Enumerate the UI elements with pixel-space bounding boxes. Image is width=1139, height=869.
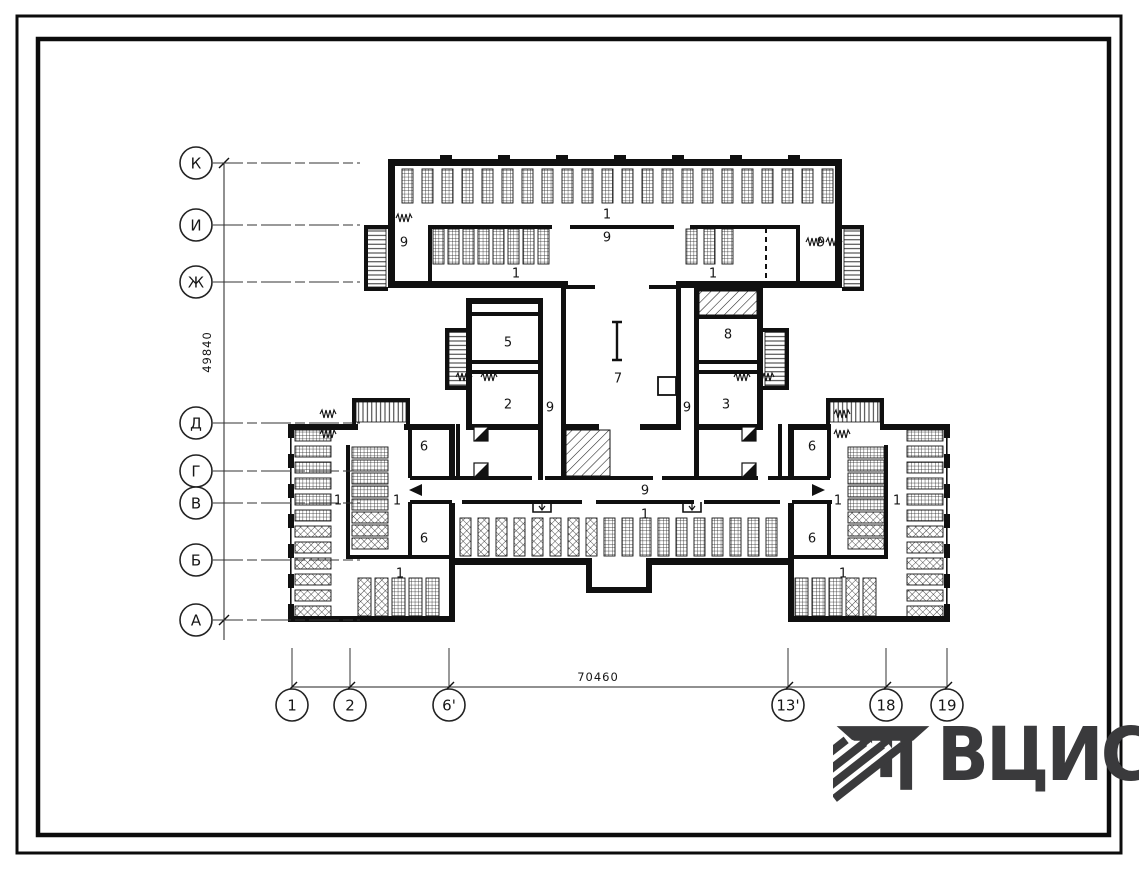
furniture-unit: [522, 169, 533, 203]
furniture-unit: [460, 518, 471, 556]
window-line: [290, 528, 292, 544]
furniture-unit: [433, 229, 444, 264]
furniture-unit: [542, 169, 553, 203]
wall: [586, 563, 592, 591]
furniture-unit: [442, 169, 453, 203]
door-spring-icon: [834, 430, 850, 438]
furniture-unit: [622, 169, 633, 203]
wall: [440, 155, 452, 166]
furniture-unit: [352, 486, 388, 497]
furniture-unit: [502, 169, 513, 203]
wall: [694, 285, 699, 480]
furniture-unit: [462, 169, 473, 203]
furniture-unit: [532, 518, 543, 556]
wall: [388, 159, 395, 288]
wall: [827, 424, 831, 478]
wall: [449, 503, 455, 622]
wall: [556, 155, 568, 166]
wall: [561, 424, 599, 430]
axis-marker-label: Г: [191, 463, 200, 481]
furniture-unit: [568, 518, 579, 556]
furniture-unit: [352, 512, 388, 523]
furniture-unit: [409, 578, 422, 616]
room-label: 9: [603, 231, 611, 246]
wall: [860, 225, 864, 291]
furniture-unit: [686, 229, 697, 264]
wall: [498, 155, 510, 166]
furniture-unit: [402, 169, 413, 203]
furniture-unit: [352, 499, 388, 510]
furniture-unit: [907, 606, 943, 617]
wall: [472, 360, 538, 364]
furniture-unit: [722, 169, 733, 203]
wall: [690, 225, 796, 229]
furniture-unit: [448, 229, 459, 264]
door-spring-icon: [481, 373, 497, 381]
stair-flight: [356, 402, 406, 422]
window-line: [290, 468, 292, 484]
door-spring-icon: [396, 214, 412, 222]
furniture-unit: [622, 518, 633, 556]
wall: [796, 225, 800, 285]
wall: [757, 285, 763, 430]
furniture-unit: [712, 518, 723, 556]
furniture-unit: [812, 578, 825, 616]
window-line: [290, 438, 292, 454]
wall: [445, 328, 449, 390]
stair-flight: [367, 229, 386, 287]
axis-marker-label: А: [191, 612, 202, 630]
furniture-unit: [602, 169, 613, 203]
wall: [538, 298, 543, 480]
furniture-unit: [662, 169, 673, 203]
furniture-unit: [907, 494, 943, 505]
wall: [449, 424, 455, 478]
vcis-emblem-icon: [833, 722, 933, 814]
furniture-unit: [463, 229, 474, 264]
wall: [699, 315, 757, 319]
stair-flight: [830, 402, 880, 422]
wall: [408, 502, 412, 558]
horizontal-dimension: 70460: [577, 670, 619, 684]
wall: [672, 155, 684, 166]
furniture-unit: [907, 478, 943, 489]
furniture-unit: [848, 538, 884, 549]
room-label: 2: [504, 398, 512, 413]
wall: [788, 424, 794, 478]
furniture-unit: [562, 169, 573, 203]
furniture-unit: [604, 518, 615, 556]
room-label: 9: [683, 401, 691, 416]
axis-marker-label: 1: [287, 697, 297, 715]
room-label: 1: [334, 494, 342, 509]
wall: [586, 587, 652, 593]
furniture-unit: [846, 578, 859, 616]
furniture-unit: [907, 590, 943, 601]
furniture-unit: [352, 473, 388, 484]
furniture-unit: [295, 446, 331, 457]
stair-flight: [765, 332, 785, 386]
furniture-unit: [907, 510, 943, 521]
furniture-unit: [822, 169, 833, 203]
door-spring-icon: [734, 373, 750, 381]
furniture-unit: [795, 578, 808, 616]
duct-symbol: [658, 377, 676, 395]
axis-marker-label: В: [191, 495, 201, 513]
furniture-unit: [426, 578, 439, 616]
wall: [785, 328, 789, 390]
wall: [788, 503, 794, 622]
furniture-unit: [352, 525, 388, 536]
hatched-area: [566, 430, 610, 476]
furniture-unit: [748, 518, 759, 556]
window-line: [290, 498, 292, 514]
wall: [288, 424, 358, 430]
room-label: 6: [420, 532, 428, 547]
furniture-unit: [514, 518, 525, 556]
furniture-unit: [352, 447, 388, 458]
wall: [428, 225, 432, 285]
furniture-unit: [375, 578, 388, 616]
furniture-unit: [523, 229, 534, 264]
wall: [704, 500, 780, 504]
furniture-unit: [848, 525, 884, 536]
axis-marker-label: 2: [345, 697, 355, 715]
furniture-unit: [762, 169, 773, 203]
furniture-unit: [702, 169, 713, 203]
logo-text: ВЦИС: [937, 722, 1139, 789]
wall: [561, 285, 566, 480]
furniture-unit: [295, 590, 331, 601]
room-label: 9: [817, 236, 825, 251]
furniture-unit: [642, 169, 653, 203]
wall: [640, 424, 681, 430]
wall: [884, 445, 888, 559]
wall: [730, 155, 742, 166]
room-label: 1: [396, 567, 404, 582]
axis-marker-label: К: [191, 155, 202, 173]
furniture-unit: [907, 462, 943, 473]
vertical-axis: 49840КИЖДГВБА: [180, 147, 360, 640]
door-spring-icon: [320, 410, 336, 418]
axis-marker-label: Д: [190, 415, 202, 433]
furniture-unit: [640, 518, 651, 556]
room-label: 1: [512, 267, 520, 282]
furniture-unit: [722, 229, 733, 264]
furniture-unit: [352, 460, 388, 471]
blueprint-sheet: 49840КИЖДГВБА 70460126'13'1819 199911529…: [0, 0, 1139, 869]
furniture-unit: [694, 518, 705, 556]
room-label: 1: [893, 494, 901, 509]
furniture-unit: [907, 574, 943, 585]
furniture-unit: [658, 518, 669, 556]
room-label: 9: [546, 401, 554, 416]
furniture-unit: [848, 460, 884, 471]
wall: [768, 476, 830, 480]
furniture-unit: [848, 473, 884, 484]
axis-marker-label: 18: [876, 697, 895, 715]
room-label: 6: [808, 532, 816, 547]
furniture-unit: [863, 578, 876, 616]
furniture-unit: [496, 518, 507, 556]
wall: [788, 555, 888, 559]
window-line: [946, 468, 948, 484]
axis-marker-label: 6': [442, 697, 456, 715]
wall: [545, 476, 653, 480]
furniture-unit: [802, 169, 813, 203]
wall: [880, 424, 950, 430]
furniture-unit: [848, 512, 884, 523]
wall: [646, 563, 652, 591]
corridor-arrow-right: [812, 484, 825, 496]
wall: [462, 500, 582, 504]
room-label: 8: [724, 328, 732, 343]
window-line: [290, 588, 292, 604]
furniture-unit: [704, 229, 715, 264]
room-labels: 1999115297839666611119111: [334, 208, 901, 582]
wall: [410, 476, 532, 480]
furniture-unit: [848, 486, 884, 497]
furniture-unit: [478, 518, 489, 556]
wall: [788, 424, 830, 430]
window-line: [946, 558, 948, 574]
furniture-unit: [848, 447, 884, 458]
wall: [827, 503, 831, 559]
furniture-unit: [907, 430, 943, 441]
stair-flight: [844, 229, 862, 287]
wall: [778, 424, 782, 480]
wall: [699, 360, 757, 364]
axis-marker-label: И: [190, 217, 201, 235]
horizontal-axis: 70460126'13'1819: [276, 648, 963, 721]
room-label: 1: [839, 567, 847, 582]
window-line: [946, 498, 948, 514]
furniture-unit: [358, 578, 371, 616]
down-arrow-icon: [689, 503, 695, 510]
wall: [563, 285, 595, 289]
axis-marker-label: Б: [191, 552, 201, 570]
furniture-unit: [482, 169, 493, 203]
furniture-unit: [508, 229, 519, 264]
room-label: 1: [709, 267, 717, 282]
furniture-unit: [295, 574, 331, 585]
room-label: 6: [808, 440, 816, 455]
furniture-unit: [295, 510, 331, 521]
wall: [676, 285, 681, 430]
furniture-unit: [295, 478, 331, 489]
furniture-unit: [730, 518, 741, 556]
down-arrow-icon: [539, 503, 545, 510]
wall: [430, 225, 552, 229]
furniture-unit: [782, 169, 793, 203]
furniture-unit: [493, 229, 504, 264]
room-label: 1: [603, 208, 611, 223]
furniture-unit: [742, 169, 753, 203]
room-label: 9: [400, 236, 408, 251]
wall: [408, 424, 412, 478]
furniture-unit: [848, 499, 884, 510]
furniture-unit: [422, 169, 433, 203]
furniture-unit: [829, 578, 842, 616]
hatched-area: [699, 291, 757, 315]
wall: [388, 281, 568, 288]
wall: [646, 558, 794, 565]
furniture-unit: [295, 606, 331, 617]
furniture-unit: [907, 446, 943, 457]
furniture-unit: [586, 518, 597, 556]
wall: [792, 500, 832, 504]
window-line: [946, 528, 948, 544]
furniture-unit: [352, 538, 388, 549]
wall: [694, 285, 763, 291]
room-label: 1: [641, 508, 649, 523]
furniture-unit: [295, 542, 331, 553]
wall: [456, 424, 460, 480]
room-label: 3: [722, 398, 730, 413]
window-line: [946, 588, 948, 604]
furniture-unit: [295, 526, 331, 537]
wall: [364, 225, 368, 291]
axis-marker-label: 13': [776, 697, 799, 715]
wall: [288, 616, 455, 622]
furniture-unit: [907, 558, 943, 569]
wall: [346, 555, 455, 559]
wall: [826, 398, 884, 402]
room-label: 7: [614, 372, 622, 387]
wall: [472, 312, 538, 316]
room-label: 1: [834, 494, 842, 509]
wall: [410, 500, 452, 504]
wall: [788, 155, 800, 166]
vertical-dimension: 49840: [200, 331, 214, 373]
wall: [352, 398, 410, 402]
furniture-unit: [907, 526, 943, 537]
axis-marker-label: Ж: [188, 274, 204, 292]
wall: [788, 616, 950, 622]
furniture-unit: [392, 578, 405, 616]
furniture-unit: [682, 169, 693, 203]
wall: [472, 370, 538, 374]
furniture-unit: [582, 169, 593, 203]
wall: [346, 445, 350, 559]
wall: [614, 155, 626, 166]
wall: [466, 298, 543, 304]
room-label: 9: [641, 484, 649, 499]
walls: [288, 155, 950, 622]
wall: [835, 159, 842, 288]
wall: [466, 298, 472, 430]
furniture-unit: [478, 229, 489, 264]
wall: [570, 225, 674, 229]
vcis-logo: ВЦИС: [833, 722, 1139, 814]
furniture-unit: [550, 518, 561, 556]
wall: [449, 558, 592, 565]
furniture-unit: [907, 542, 943, 553]
furniture-unit: [538, 229, 549, 264]
room-label: 5: [504, 336, 512, 351]
window-line: [946, 438, 948, 454]
room-label: 6: [420, 440, 428, 455]
column-symbol: [612, 322, 622, 360]
room-label: 1: [393, 494, 401, 509]
corridor-arrow-left: [409, 484, 422, 496]
furniture-unit: [676, 518, 687, 556]
wall: [596, 500, 694, 504]
furniture-unit: [766, 518, 777, 556]
